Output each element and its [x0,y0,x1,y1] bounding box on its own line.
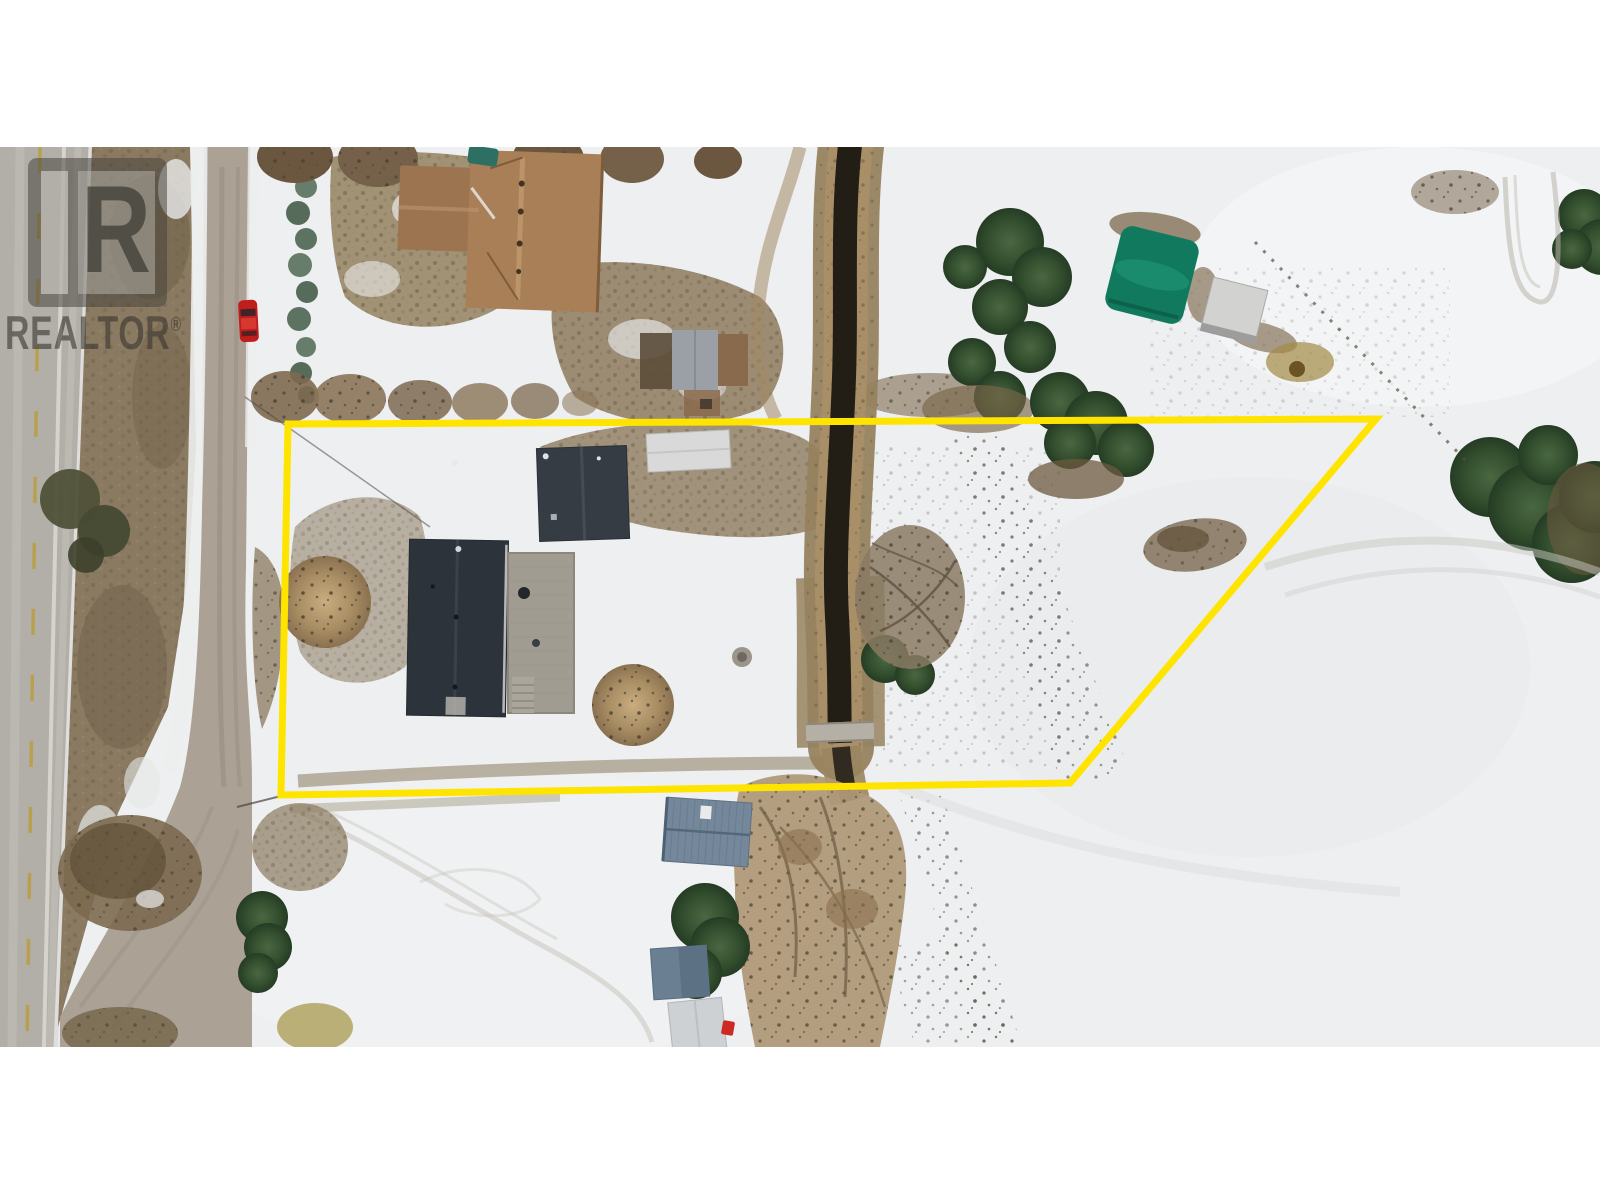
deck [508,553,574,713]
dark-shed [536,445,629,541]
bottom-white-shed [668,997,727,1047]
blue-shed [650,945,709,1000]
main-house [406,539,508,717]
utility-pole [452,460,458,466]
red-car [238,300,259,343]
chimney [700,806,712,820]
aerial-photo-canvas [0,147,1600,1047]
grill [518,587,530,599]
page: { "watermark": { "logo_letter": "R", "br… [0,0,1600,1200]
aerial-photo: R REALTOR® [0,147,1600,1047]
creek-water [836,147,851,743]
blue-house [663,797,752,867]
creek-culvert [806,721,875,743]
deck-stairs [512,677,534,713]
white-shed [646,430,731,472]
red-object [721,1020,735,1036]
bare-trees-east-of-creek [855,525,965,669]
